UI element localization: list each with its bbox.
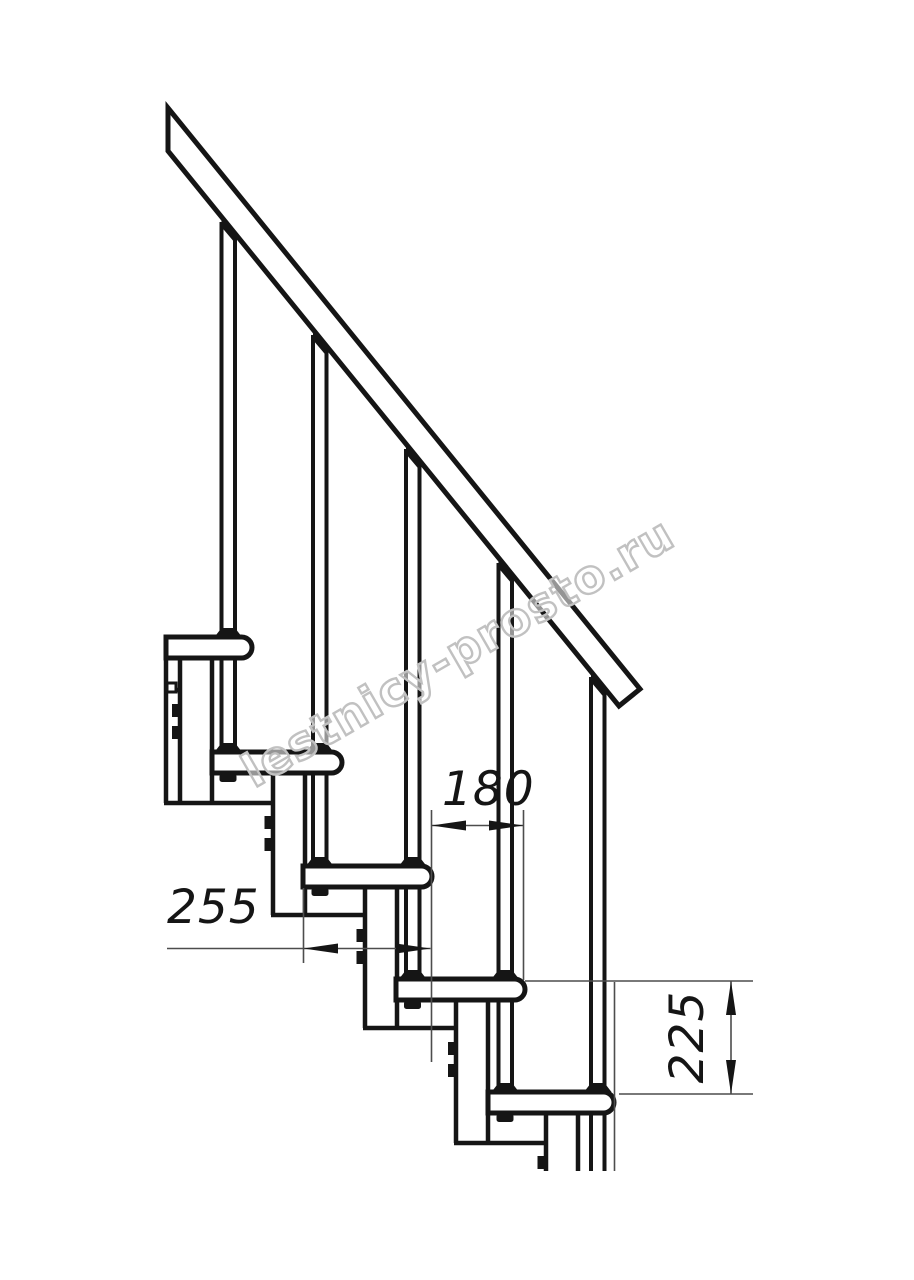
- baluster-2-lower-rod: [313, 773, 327, 866]
- tread-4: [396, 979, 525, 1000]
- dimension-tread-depth: 255: [167, 880, 260, 935]
- flange-b3-t4: [399, 970, 427, 979]
- baluster-1-lower-rod: [222, 658, 236, 752]
- dimension-step-run: 180: [442, 762, 535, 817]
- clamp-tab: [172, 726, 181, 739]
- dimension-annotations: 180 255 225: [167, 762, 753, 1171]
- clamp-tab: [172, 704, 181, 717]
- dimension-step-rise: 225: [660, 991, 715, 1084]
- tread-1: [166, 637, 252, 658]
- column-5: [546, 1113, 578, 1171]
- flange-b4-t4: [492, 970, 520, 979]
- arrow-left-icon: [304, 944, 339, 954]
- stair-technical-drawing: lestnicy-prosto.ru 180 255 225: [0, 0, 914, 1280]
- nut-under-tread-2: [220, 774, 237, 782]
- tread-5: [488, 1092, 614, 1113]
- tread-3: [303, 866, 432, 887]
- flange-b1-t1: [215, 628, 243, 637]
- column-4: [456, 1000, 488, 1143]
- flange-b4-t5: [492, 1083, 520, 1092]
- nut-under-tread-4: [404, 1001, 421, 1009]
- baluster-5-lower-rod: [591, 1113, 605, 1171]
- baluster-1-rod: [222, 224, 236, 630]
- baluster-2-rod: [313, 337, 327, 745]
- column-1: [180, 658, 212, 803]
- nut-under-tread-3: [312, 888, 329, 896]
- flange-b3-t3: [399, 857, 427, 866]
- nut-under-tread-5: [497, 1114, 514, 1122]
- flange-b5-t5: [584, 1083, 612, 1092]
- clamp-tab: [265, 838, 274, 851]
- baluster-3-lower-rod: [406, 887, 420, 979]
- clamp-tab: [538, 1156, 547, 1169]
- clamp-tab: [265, 816, 274, 829]
- arrow-left-icon: [432, 821, 467, 831]
- clamp-tab: [357, 951, 366, 964]
- arrow-down-icon: [726, 1060, 736, 1094]
- baluster-4-lower-rod: [499, 1000, 513, 1092]
- plate-notch: [167, 683, 176, 692]
- flange-b2-t3: [306, 857, 334, 866]
- arrow-up-icon: [726, 981, 736, 1015]
- screenshot-canvas: lestnicy-prosto.ru 180 255 225: [0, 0, 914, 1280]
- clamp-tab: [448, 1042, 457, 1055]
- column-2: [273, 773, 305, 915]
- clamp-tab: [357, 929, 366, 942]
- column-3: [365, 887, 397, 1028]
- watermark-text: lestnicy-prosto.ru: [233, 506, 684, 797]
- clamp-tab: [448, 1064, 457, 1077]
- baluster-5-rod: [591, 679, 605, 1085]
